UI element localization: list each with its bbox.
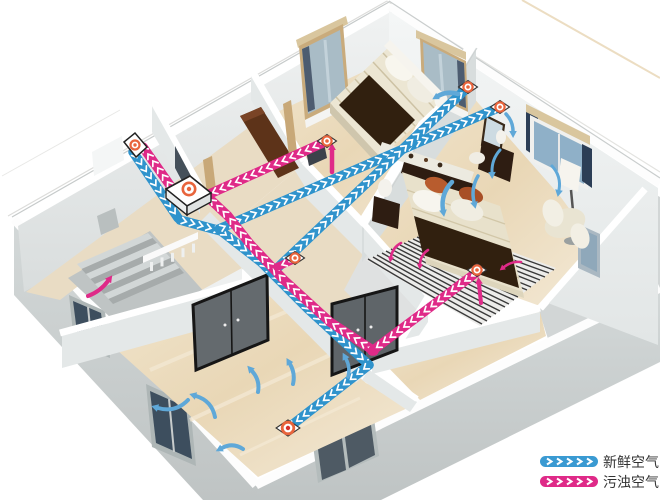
svg-text:新鲜空气: 新鲜空气 (603, 454, 659, 470)
svg-text:污浊空气: 污浊空气 (603, 474, 659, 490)
